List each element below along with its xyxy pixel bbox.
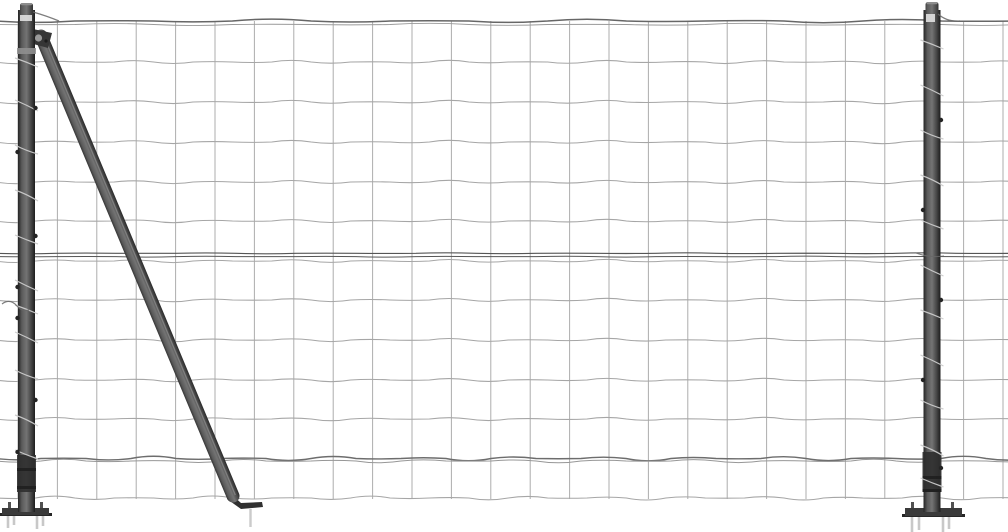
product-photo [0,0,1008,532]
left-fence-post [0,3,52,529]
right-fence-post [902,2,965,532]
diagonal-brace-strut [26,28,263,527]
wire-accents [2,12,960,311]
fence-svg [0,0,1008,532]
mesh-grid [0,19,1008,500]
